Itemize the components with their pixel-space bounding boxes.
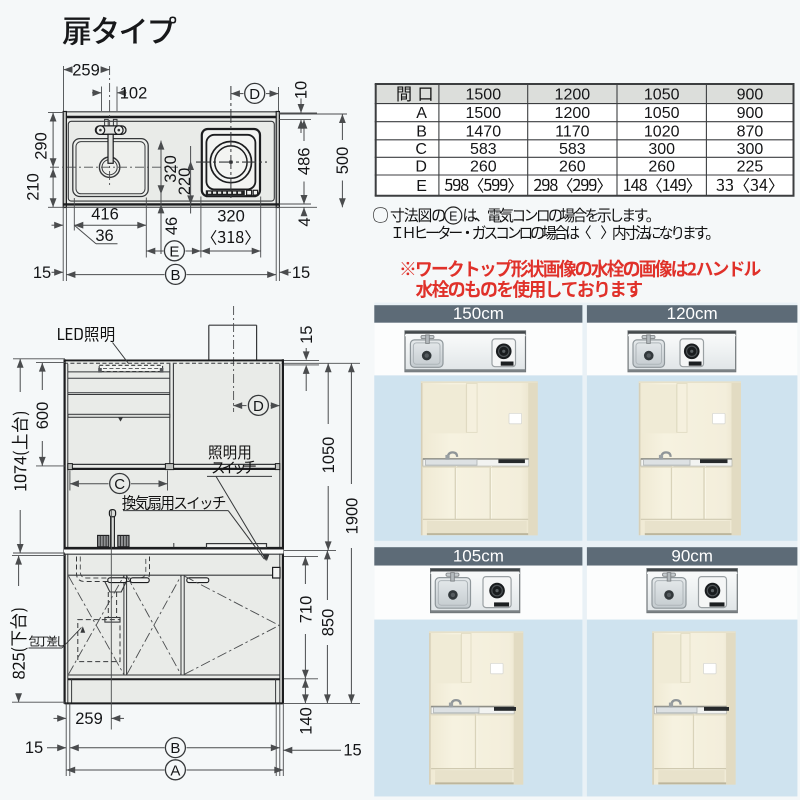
svg-text:850: 850 (319, 609, 337, 637)
svg-text:259: 259 (72, 61, 100, 79)
svg-text:C: C (114, 476, 125, 493)
svg-text:E: E (416, 178, 427, 195)
svg-text:1050: 1050 (320, 437, 338, 474)
svg-text:320: 320 (217, 208, 245, 226)
svg-text:260: 260 (470, 159, 497, 176)
svg-text:259: 259 (75, 710, 103, 728)
svg-text:870: 870 (737, 123, 764, 140)
svg-text:710: 710 (297, 596, 315, 624)
svg-text:900: 900 (737, 105, 764, 122)
svg-text:E: E (169, 243, 179, 260)
svg-text:A: A (170, 762, 180, 779)
svg-text:120cm: 120cm (667, 304, 718, 323)
svg-text:15: 15 (343, 742, 361, 760)
svg-text:500: 500 (334, 147, 352, 175)
svg-text:150cm: 150cm (453, 304, 504, 323)
svg-text:900: 900 (737, 87, 764, 104)
svg-text:140: 140 (297, 707, 315, 735)
svg-text:1500: 1500 (466, 105, 502, 122)
svg-text:A: A (416, 105, 427, 122)
svg-text:B: B (170, 740, 180, 757)
svg-text:D: D (253, 398, 264, 415)
svg-text:1500: 1500 (466, 87, 502, 104)
svg-text:416: 416 (91, 206, 119, 224)
svg-text:E: E (449, 210, 457, 224)
svg-text:225: 225 (737, 159, 764, 176)
svg-text:D: D (249, 86, 260, 103)
svg-text:260: 260 (648, 159, 675, 176)
svg-text:290: 290 (33, 132, 51, 160)
svg-text:105cm: 105cm (453, 547, 504, 566)
svg-text:15: 15 (33, 264, 51, 282)
svg-text:B: B (170, 267, 180, 284)
svg-text:1200: 1200 (555, 87, 591, 104)
svg-text:1900: 1900 (343, 498, 361, 535)
svg-text:15: 15 (298, 326, 316, 344)
svg-text:583: 583 (559, 141, 586, 158)
svg-text:1170: 1170 (555, 123, 590, 140)
svg-text:102: 102 (120, 84, 148, 102)
svg-text:10: 10 (293, 81, 311, 99)
svg-text:15: 15 (292, 264, 310, 282)
svg-text:36: 36 (95, 227, 113, 245)
svg-text:D: D (415, 159, 427, 176)
svg-text:1200: 1200 (555, 105, 591, 122)
svg-text:1050: 1050 (644, 87, 680, 104)
svg-text:486: 486 (296, 148, 314, 176)
svg-text:C: C (415, 141, 427, 158)
svg-text:B: B (416, 123, 427, 140)
svg-text:210: 210 (25, 173, 43, 201)
svg-text:90cm: 90cm (671, 547, 713, 566)
svg-text:15: 15 (25, 739, 43, 757)
svg-text:1050: 1050 (644, 105, 680, 122)
svg-text:1470: 1470 (466, 123, 502, 140)
svg-text:600: 600 (34, 402, 52, 430)
svg-text:4: 4 (296, 217, 314, 226)
svg-text:300: 300 (648, 141, 675, 158)
svg-text:260: 260 (559, 159, 586, 176)
svg-text:300: 300 (737, 141, 764, 158)
svg-text:583: 583 (470, 141, 497, 158)
svg-text:46: 46 (163, 217, 181, 235)
svg-text:1020: 1020 (644, 123, 680, 140)
svg-text:220: 220 (176, 168, 194, 196)
